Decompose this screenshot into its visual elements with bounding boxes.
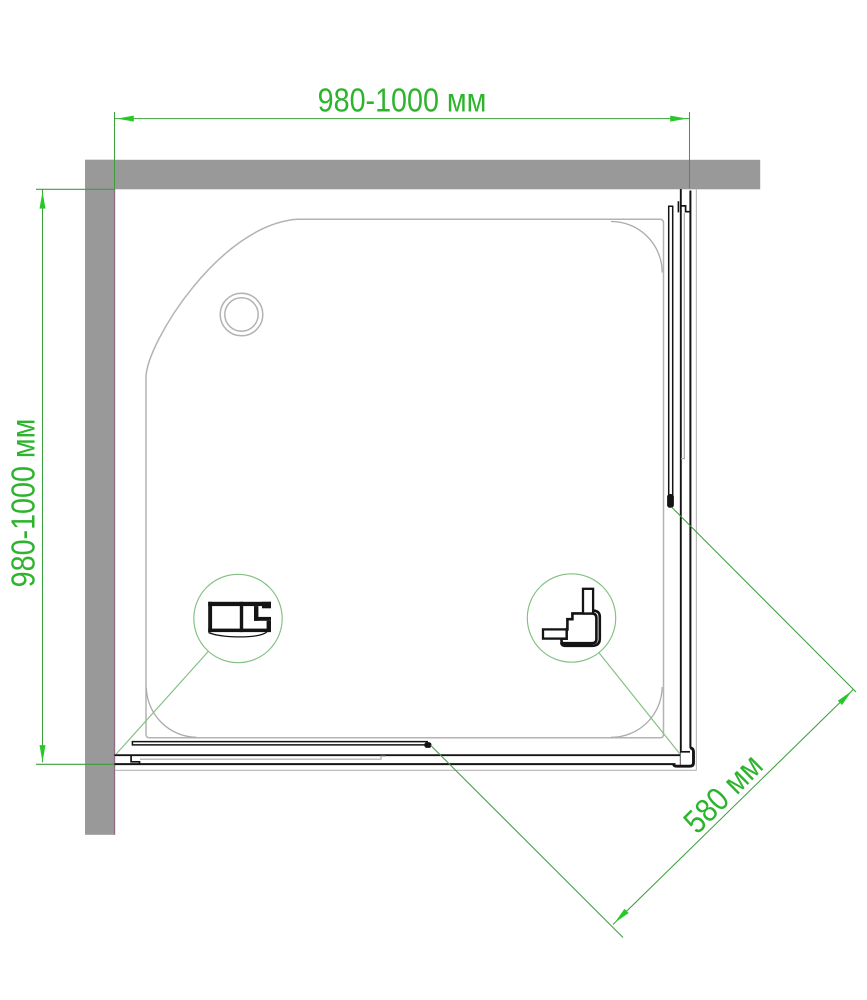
svg-text:980-1000 мм: 980-1000 мм (318, 81, 487, 118)
svg-text:980-1000 мм: 980-1000 мм (5, 419, 42, 588)
